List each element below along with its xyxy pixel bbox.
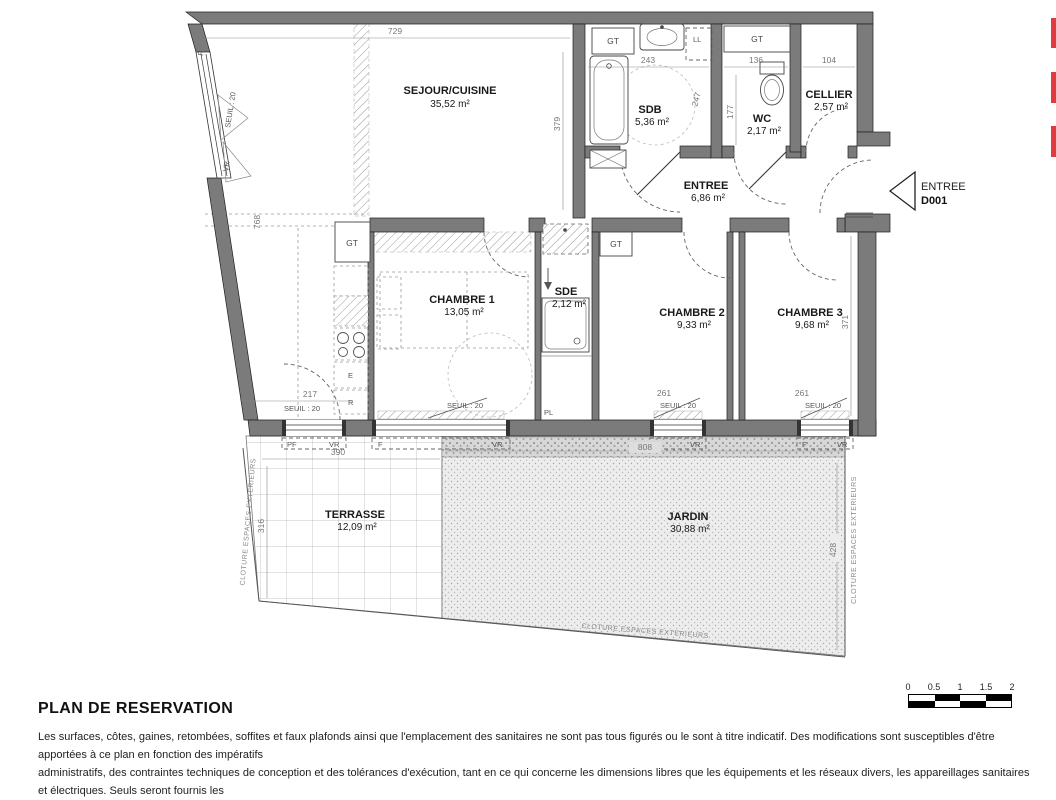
red-edge-marker [1051, 18, 1056, 48]
room-area-jardin: 30,88 m² [670, 524, 710, 535]
left-window-seuil-label: SEUIL : 20 [223, 91, 238, 128]
dim-terrasse-h: 316 [256, 519, 266, 533]
room-area-entree: 6,86 m² [691, 193, 726, 204]
gt-label: GT [751, 34, 763, 44]
dim-ch2-sill: 261 [657, 388, 671, 398]
dim-terrasse-w: 390 [331, 447, 345, 457]
page: CLOTURE ESPACES EXTERIEURS CLOTURE ESPAC… [0, 0, 1056, 800]
dim-jardin-w: 808 [638, 442, 652, 452]
dim-sdb-w: 243 [641, 55, 655, 65]
kitchen-fridge-label: R [348, 398, 354, 407]
scale-bar-graphic [908, 694, 1012, 708]
scale-tick: 1 [957, 682, 962, 692]
scale-tick: 2 [1009, 682, 1014, 692]
footer: PLAN DE RESERVATION Les surfaces, côtes,… [38, 700, 1038, 800]
scale-tick: 0 [905, 682, 910, 692]
entry-door-code: D001 [921, 195, 947, 207]
dim-wc-w: 136 [749, 55, 763, 65]
entry-marker: ENTREE D001 [890, 172, 966, 210]
dim-left-h: 768 [252, 215, 262, 229]
dim-sejour-h: 379 [552, 117, 562, 131]
dim-sdb-h: 247 [689, 91, 702, 108]
room-area-sdb: 5,36 m² [635, 117, 670, 128]
bathtub [590, 56, 628, 144]
room-area-wc: 2,17 m² [747, 126, 782, 137]
room-name-sde: SDE [555, 286, 578, 298]
kitchen-sink-label: E [348, 371, 353, 380]
room-area-cellier: 2,57 m² [814, 102, 849, 113]
sde-entry-arrow [544, 268, 552, 290]
room-name-entree: ENTREE [684, 180, 729, 192]
room-name-sejour: SEJOUR/CUISINE [404, 85, 497, 97]
room-name-wc: WC [753, 113, 771, 125]
room-name-cellier: CELLIER [805, 89, 852, 101]
scale-bar: 0 0.5 1 1.5 2 [908, 682, 1012, 708]
room-name-chambre3: CHAMBRE 3 [777, 307, 842, 319]
f-label: F [802, 440, 807, 449]
disclaimer-line-1: Les surfaces, côtes, gaines, retombées, … [38, 728, 1038, 764]
dim-jardin-h: 428 [828, 543, 838, 557]
gt-label: GT [610, 239, 622, 249]
room-name-chambre2: CHAMBRE 2 [659, 307, 724, 319]
gt-label: GT [607, 36, 619, 46]
pf-label: PF [287, 440, 297, 449]
disclaimer-line-2: administratifs, des contraintes techniqu… [38, 764, 1038, 800]
room-area-sejour: 35,52 m² [430, 99, 470, 110]
entry-label: ENTREE [921, 181, 966, 193]
room-area-chambre3: 9,68 m² [795, 320, 830, 331]
room-area-sde: 2,12 m² [552, 299, 587, 310]
cloture-label-right: CLOTURE ESPACES EXTERIEURS [851, 476, 858, 604]
room-area-chambre2: 9,33 m² [677, 320, 712, 331]
entry-arrow-icon [890, 172, 915, 210]
pl-label: PL [544, 408, 553, 417]
dim-sejour-w: 729 [388, 26, 402, 36]
room-name-chambre1: CHAMBRE 1 [429, 294, 494, 306]
vr-label: VR [492, 440, 503, 449]
dim-corridor-w: 217 [303, 389, 317, 399]
walls [186, 12, 890, 436]
room-name-jardin: JARDIN [668, 511, 709, 523]
room-area-chambre1: 13,05 m² [444, 307, 484, 318]
room-area-terrasse: 12,09 m² [337, 522, 377, 533]
scale-tick: 0.5 [928, 682, 941, 692]
page-title: PLAN DE RESERVATION [38, 700, 1038, 718]
jardin-area [442, 436, 845, 656]
sdb-washbasin [640, 24, 684, 50]
vr-label: VR [837, 440, 848, 449]
toilet [760, 62, 784, 105]
dim-cellier-w: 104 [822, 55, 836, 65]
gt-label: GT [346, 238, 358, 248]
left-window: F SEUIL : 20 VR [196, 50, 251, 182]
vr-label: VR [690, 440, 701, 449]
washer-box [686, 28, 712, 60]
red-edge-marker [1051, 126, 1056, 157]
ll-label: LL [693, 35, 701, 44]
kitchen: E R [334, 266, 368, 414]
scale-tick: 1.5 [980, 682, 993, 692]
dim-ch3-sill: 261 [795, 388, 809, 398]
seuil-label: SEUIL : 20 [284, 404, 320, 413]
red-edge-marker [1051, 72, 1056, 103]
floor-plan: CLOTURE ESPACES EXTERIEURS CLOTURE ESPAC… [0, 0, 1056, 690]
room-name-terrasse: TERRASSE [325, 509, 385, 521]
scale-bar-labels: 0 0.5 1 1.5 2 [908, 682, 1012, 694]
dim-wc-h: 177 [725, 105, 735, 119]
left-window-vr-label: VR [221, 160, 232, 172]
f-label: F [378, 440, 383, 449]
room-name-sdb: SDB [638, 104, 661, 116]
